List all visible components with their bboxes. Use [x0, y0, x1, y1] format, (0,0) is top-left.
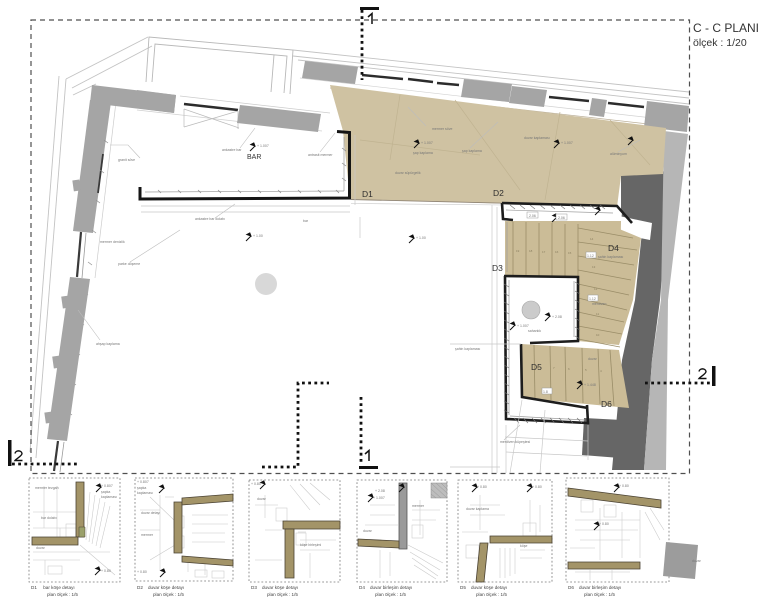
svg-text:+ 2.08: + 2.08	[375, 489, 385, 493]
svg-text:+ 1.448: + 1.448	[584, 383, 596, 387]
svg-text:duvar: duvar	[692, 559, 702, 563]
svg-text:ankastre bar dolabı: ankastre bar dolabı	[195, 217, 225, 221]
svg-text:+ 0.80: + 0.80	[101, 569, 111, 573]
svg-text:parke döşeme: parke döşeme	[118, 262, 140, 266]
svg-text:bar: bar	[303, 219, 309, 223]
svg-text:ölçek : 1/20: ölçek : 1/20	[693, 37, 747, 49]
svg-text:+ 1.007: + 1.007	[561, 141, 573, 145]
svg-text:D2: D2	[493, 188, 504, 198]
svg-text:+ 1.00: + 1.00	[253, 234, 263, 238]
svg-text:17: 17	[542, 250, 546, 254]
svg-text:+ 1.007: + 1.007	[517, 324, 529, 328]
svg-text:19: 19	[516, 249, 520, 253]
svg-text:duvar: duvar	[257, 497, 267, 501]
svg-text:D2 duvar köşe detayı: D2 duvar köşe detayı	[137, 585, 184, 590]
svg-text:+ 0.807: + 0.807	[137, 480, 149, 484]
svg-text:+ 0.80: + 0.80	[137, 570, 147, 574]
svg-text:D6 duvar birleşim detayı: D6 duvar birleşim detayı	[568, 585, 621, 590]
svg-text:ankastre bar: ankastre bar	[222, 148, 242, 152]
svg-text:D1 bar köşe detayı: D1 bar köşe detayı	[31, 585, 75, 590]
svg-text:D6: D6	[601, 399, 612, 409]
svg-text:duvar kaplaması: duvar kaplaması	[524, 136, 550, 140]
svg-text:1.8: 1.8	[543, 390, 548, 394]
svg-text:+ 1.007: + 1.007	[373, 496, 385, 500]
svg-text:şap kaplama: şap kaplama	[462, 149, 482, 153]
svg-text:13: 13	[592, 265, 596, 269]
svg-text:+ 0.80: + 0.80	[619, 484, 629, 488]
svg-text:duvar süpürgelik: duvar süpürgelik	[395, 171, 421, 175]
svg-text:şahin kaplaması: şahin kaplaması	[598, 255, 623, 259]
svg-text:şapka: şapka	[101, 490, 110, 494]
svg-text:+ 1.00: + 1.00	[416, 236, 426, 240]
svg-text:kaplaması: kaplaması	[137, 491, 153, 495]
svg-text:C - C PLANI: C - C PLANI	[693, 21, 759, 35]
svg-text:2.06: 2.06	[558, 216, 565, 220]
svg-text:ahşap kaplama: ahşap kaplama	[96, 342, 120, 346]
svg-text:duvar: duvar	[363, 529, 373, 533]
svg-text:D4 duvar birleşim detayı: D4 duvar birleşim detayı	[359, 585, 412, 590]
svg-text:mermer: mermer	[412, 504, 425, 508]
svg-text:+ 2.08: + 2.08	[552, 315, 562, 319]
svg-text:alüminyum: alüminyum	[610, 152, 627, 156]
svg-text:köşe birleşimi: köşe birleşimi	[300, 543, 321, 547]
svg-text:1.12: 1.12	[587, 254, 594, 258]
svg-text:şapka: şapka	[137, 486, 146, 490]
svg-text:11: 11	[596, 312, 599, 316]
svg-text:plan ölçek : 1/5: plan ölçek : 1/5	[584, 592, 615, 597]
svg-text:köşe: köşe	[520, 544, 527, 548]
svg-text:1.12: 1.12	[589, 297, 596, 301]
svg-text:kaplaması: kaplaması	[101, 495, 117, 499]
svg-text:mermer: mermer	[141, 533, 154, 537]
svg-text:sahanlık: sahanlık	[528, 329, 541, 333]
svg-text:+ 0.80: + 0.80	[599, 522, 609, 526]
svg-text:plan ölçek : 1/5: plan ölçek : 1/5	[476, 592, 507, 597]
svg-text:merdiven: merdiven	[592, 302, 606, 306]
svg-text:şahin kaplaması: şahin kaplaması	[455, 347, 480, 351]
svg-text:şap kaplama: şap kaplama	[413, 151, 433, 155]
svg-text:+ 1.007: + 1.007	[257, 144, 269, 148]
svg-text:duvar: duvar	[36, 546, 46, 550]
svg-text:mermer söve: mermer söve	[432, 127, 452, 131]
svg-text:14: 14	[590, 237, 594, 241]
svg-text:duvar detayı: duvar detayı	[141, 511, 160, 515]
svg-text:D4: D4	[608, 243, 619, 253]
svg-text:+ 0.80: + 0.80	[251, 482, 261, 486]
svg-text:12: 12	[594, 287, 598, 291]
svg-text:plan ölçek : 1/5: plan ölçek : 1/5	[47, 592, 78, 597]
svg-text:18: 18	[529, 249, 533, 253]
svg-text:2.06: 2.06	[529, 214, 536, 218]
svg-text:10: 10	[596, 333, 600, 337]
svg-text:plan ölçek : 1/5: plan ölçek : 1/5	[267, 592, 298, 597]
svg-text:D5 duvar köşe detayı: D5 duvar köşe detayı	[460, 585, 507, 590]
svg-text:+ 1.007: + 1.007	[421, 141, 433, 145]
svg-text:BAR: BAR	[247, 154, 261, 161]
svg-text:duvar kaplama: duvar kaplama	[466, 507, 489, 511]
svg-text:D1: D1	[362, 189, 373, 199]
svg-text:duvar: duvar	[588, 357, 598, 361]
svg-text:D3: D3	[492, 263, 503, 273]
svg-text:16: 16	[555, 250, 559, 254]
svg-text:D3 duvar köşe detayı: D3 duvar köşe detayı	[251, 585, 298, 590]
svg-text:+ 0.80: + 0.80	[532, 485, 542, 489]
svg-text:plan ölçek : 1/5: plan ölçek : 1/5	[375, 592, 406, 597]
svg-text:granit söve: granit söve	[118, 158, 135, 162]
svg-text:bar dolabı: bar dolabı	[41, 516, 57, 520]
svg-text:15: 15	[568, 251, 572, 255]
svg-text:+ 0.807: + 0.807	[101, 484, 113, 488]
svg-text:mermer denizlik: mermer denizlik	[100, 240, 125, 244]
svg-text:plan ölçek : 1/5: plan ölçek : 1/5	[153, 592, 184, 597]
svg-text:antrasit mermer: antrasit mermer	[308, 153, 333, 157]
svg-text:merdiven küpeştesi: merdiven küpeştesi	[500, 440, 530, 444]
svg-text:+ 0.80: + 0.80	[477, 485, 487, 489]
svg-text:mermer tezgah: mermer tezgah	[35, 486, 59, 490]
